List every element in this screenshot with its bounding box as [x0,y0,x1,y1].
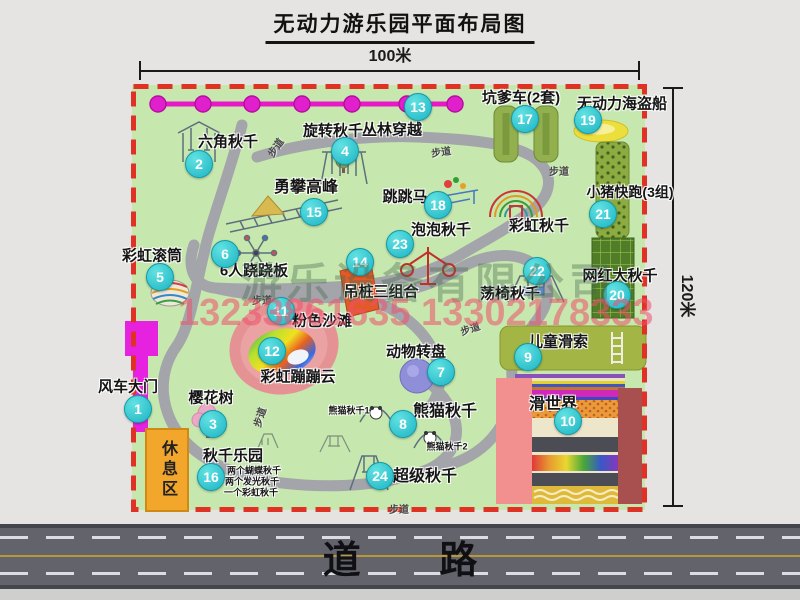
attraction-badge-23: 23 [386,230,414,258]
attraction-badge-24: 24 [366,462,394,490]
attraction-label-11: 粉色沙滩 [292,310,352,331]
attraction-badge-1: 1 [124,395,152,423]
attraction-label-22: 荡椅秋千 [480,283,540,304]
annotation-label: 熊猫秋千2 [426,440,467,453]
footpath-label: 步道 [389,501,409,516]
attraction-badge-10: 10 [554,407,582,435]
attraction-badge-20: 20 [603,281,631,309]
attraction-badge-7: 7 [427,358,455,386]
attraction-badge-13: 13 [404,93,432,121]
attraction-badge-9: 9 [514,343,542,371]
attraction-label-24: 超级秋千 [393,462,457,486]
attraction-label-14: 吊桩三组合 [343,281,418,302]
footpath-label: 步道 [263,135,287,160]
footpath-label: 步道 [249,405,269,429]
attraction-badge-17: 17 [511,105,539,133]
attraction-label-2: 六角秋千 [198,131,258,152]
attraction-badge-2: 2 [185,150,213,178]
attraction-label-23: 泡泡秋千 [411,219,471,240]
layout-plan-canvas: 无动力游乐园平面布局图 100米 120米 [0,0,800,600]
attraction-label-1: 风车大门 [98,376,158,397]
attraction-badge-16: 16 [197,463,225,491]
attraction-badge-18: 18 [424,191,452,219]
annotation-label: 彩虹秋千 [509,215,569,236]
marker-overlay: 风车大门1六角秋千2樱花树3旋转秋千4彩虹滚筒56人跷跷板6动物转盘7熊猫秋千8… [0,0,800,600]
attraction-label-4: 旋转秋千 [303,120,363,141]
attraction-badge-15: 15 [300,198,328,226]
attraction-badge-5: 5 [146,263,174,291]
attraction-badge-11: 11 [267,297,295,325]
footpath-label: 步道 [458,318,482,338]
attraction-label-21: 小猪快跑(3组) [586,182,673,202]
attraction-label-12: 彩虹蹦蹦云 [260,366,335,387]
attraction-label-13: 丛林穿越 [362,119,422,140]
footpath-label: 步道 [430,142,452,160]
attraction-badge-8: 8 [389,410,417,438]
attraction-badge-14: 14 [346,248,374,276]
attraction-badge-3: 3 [199,410,227,438]
attraction-label-8: 熊猫秋千 [413,397,477,421]
attraction-badge-4: 4 [331,137,359,165]
attraction-label-5: 彩虹滚筒 [122,245,182,266]
attraction-label-18: 跳跳马 [382,186,427,207]
attraction-badge-6: 6 [211,240,239,268]
attraction-label-3: 樱花树 [188,387,233,408]
footpath-label: 步道 [549,163,569,178]
annotation-label: 熊猫秋千1 [328,404,369,417]
annotation-label: 一个彩虹秋千 [224,486,278,499]
attraction-badge-19: 19 [574,106,602,134]
attraction-badge-21: 21 [589,200,617,228]
attraction-badge-22: 22 [523,257,551,285]
attraction-badge-12: 12 [258,337,286,365]
attraction-label-15: 勇攀高峰 [274,173,338,197]
